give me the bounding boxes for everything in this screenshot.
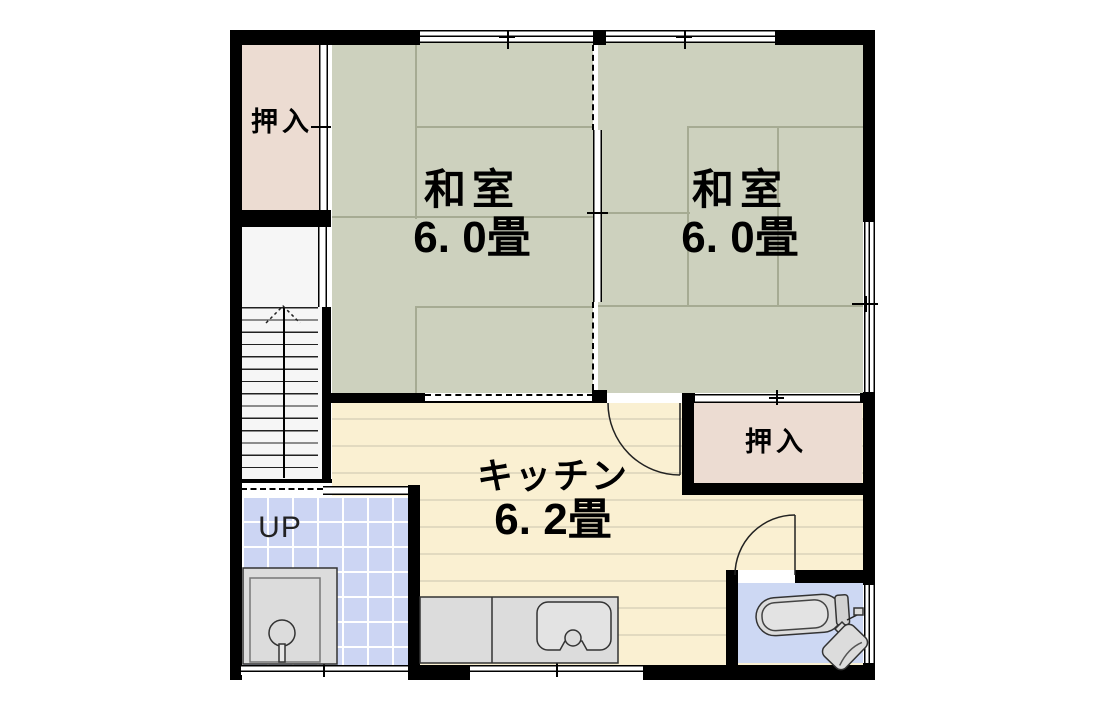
stairs-up-arrow bbox=[266, 306, 300, 323]
label-washitsu-left-name: 和室 bbox=[342, 168, 602, 212]
label-kitchen-name: キッチン bbox=[423, 457, 683, 495]
label-kitchen-area: 6. 2畳 bbox=[423, 497, 683, 543]
washbasin-pedestal bbox=[279, 644, 285, 662]
label-washitsu-right-name: 和室 bbox=[610, 168, 870, 212]
kitchen-counter bbox=[420, 597, 618, 663]
washbasin-bowl bbox=[269, 620, 295, 646]
fixtures-layer bbox=[0, 0, 1104, 707]
label-stairs-up: UP bbox=[244, 512, 316, 544]
label-washitsu-left-area: 6. 0畳 bbox=[342, 215, 602, 261]
washbasin-unit bbox=[243, 568, 337, 664]
floor-plan: 押入 和室 6. 0畳 和室 6. 0畳 キッチン 6. 2畳 押入 UP bbox=[0, 0, 1104, 707]
label-washitsu-right-area: 6. 0畳 bbox=[610, 215, 870, 261]
sink-drain bbox=[565, 630, 581, 646]
label-closet-top-left: 押入 bbox=[242, 108, 322, 136]
door-bathroom bbox=[735, 515, 795, 575]
label-closet-bottom-right: 押入 bbox=[696, 428, 856, 456]
